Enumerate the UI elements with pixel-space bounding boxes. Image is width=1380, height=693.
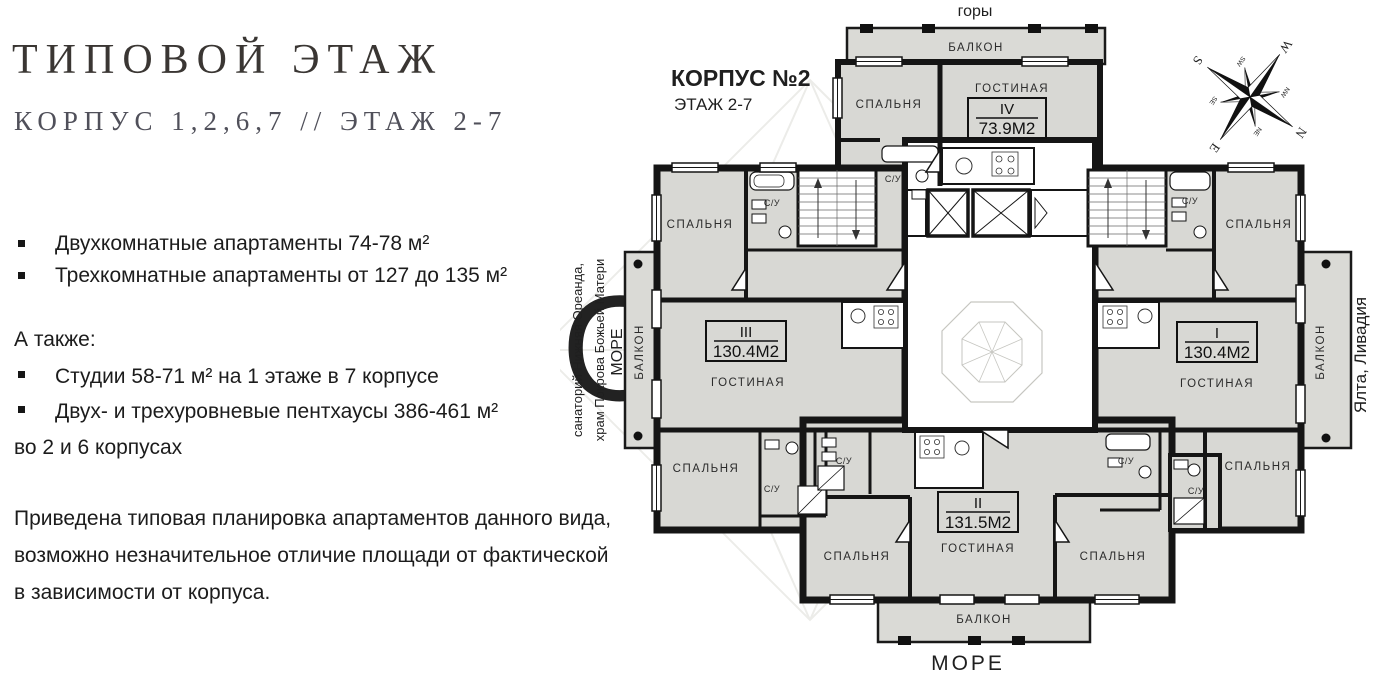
apartment-number: III (740, 324, 753, 341)
surrounding-sea-left: МОРЕ (609, 328, 626, 375)
bathroom-label: С/У (1118, 456, 1134, 466)
bedroom-label: СПАЛЬНЯ (856, 99, 923, 111)
apartment-number: II (974, 495, 982, 512)
surrounding-yalta: Ялта, Ливадия (1351, 297, 1370, 413)
apartment-iii-box: III 130.4М2 ГОСТИНАЯ (706, 321, 786, 389)
bedroom-label: СПАЛЬНЯ (824, 551, 891, 563)
also-bullets: А также: Студии 58-71 м² на 1 этаже в 7 … (14, 322, 614, 465)
compass-e: E (1206, 141, 1223, 156)
apartment-area: 131.5М2 (945, 513, 1011, 532)
bullet-text: Студии 58-71 м² на 1 этаже в 7 корпусе (55, 359, 439, 394)
info-panel: ТИПОВОЙ ЭТАЖ КОРПУС 1,2,6,7 // ЭТАЖ 2-7 … (0, 0, 630, 693)
compass-nw: NW (1278, 86, 1290, 100)
living-room-label: ГОСТИНАЯ (975, 83, 1049, 95)
surrounding-mountains: горы (958, 3, 993, 20)
slide: ТИПОВОЙ ЭТАЖ КОРПУС 1,2,6,7 // ЭТАЖ 2-7 … (0, 0, 1380, 693)
list-item: Двухкомнатные апартаменты 74-78 м² (14, 228, 614, 260)
living-room-label: ГОСТИНАЯ (1180, 378, 1254, 390)
kitchen-unit (942, 148, 1034, 184)
compass-sw: SW (1234, 55, 1246, 68)
compass-ne: NE (1251, 126, 1262, 138)
bathroom-label: С/У (1182, 196, 1198, 206)
balcony-label: БАЛКОН (1315, 324, 1327, 380)
surrounding-sea-bottom: МОРЕ (931, 652, 1005, 675)
page-subtitle: КОРПУС 1,2,6,7 // ЭТАЖ 2-7 (14, 106, 507, 137)
bathroom-label: С/У (836, 456, 852, 466)
list-item: Студии 58-71 м² на 1 этаже в 7 корпусе (14, 359, 614, 394)
apartment-area: 73.9М2 (979, 119, 1036, 138)
bullet-marker (18, 406, 25, 413)
disclaimer-note: Приведена типовая планировка апартаменто… (14, 500, 614, 611)
compass-se: SE (1207, 95, 1218, 107)
bathroom-label: С/У (885, 174, 901, 184)
list-item: Двух- и трехуровневые пентхаусы 386-461 … (14, 394, 614, 429)
bathroom-label: С/У (764, 484, 780, 494)
list-item: Трехкомнатные апартаменты от 127 до 135 … (14, 260, 614, 292)
etazh-label: ЭТАЖ 2-7 (674, 95, 752, 114)
bathroom-label: С/У (1188, 486, 1204, 496)
apartment-number: IV (1000, 101, 1014, 118)
surrounding-left-line1: санаторий Нижняя Ореанда, (570, 263, 585, 437)
stairs-left (798, 170, 876, 246)
kitchen-unit (842, 302, 904, 348)
bullet-text: Двух- и трехуровневые пентхаусы 386-461 … (55, 394, 498, 429)
compass-w: W (1276, 37, 1296, 56)
balcony-label: БАЛКОН (634, 324, 646, 380)
kitchen-unit (1097, 302, 1159, 348)
bullet-text: Двухкомнатные апартаменты 74-78 м² (55, 228, 429, 260)
compass-s: S (1190, 53, 1206, 68)
korpus-label: КОРПУС №2 (671, 65, 811, 91)
balcony-bottom: БАЛКОН (878, 598, 1090, 645)
living-room-label: ГОСТИНАЯ (711, 377, 785, 389)
compass-n: N (1292, 125, 1310, 142)
apartment-ii-box: II 131.5М2 ГОСТИНАЯ (938, 492, 1018, 555)
apartment-bullets: Двухкомнатные апартаменты 74-78 м² Трехк… (14, 228, 614, 292)
bedroom-label: СПАЛЬНЯ (1226, 219, 1293, 231)
also-tail: во 2 и 6 корпусах (14, 430, 614, 465)
elevator (907, 190, 1091, 236)
also-label: А также: (14, 322, 614, 357)
page-title: ТИПОВОЙ ЭТАЖ (12, 36, 443, 84)
bullet-text: Трехкомнатные апартаменты от 127 до 135 … (55, 260, 507, 292)
bedroom-label: СПАЛЬНЯ (667, 219, 734, 231)
apartment-area: 130.4М2 (1184, 343, 1250, 362)
apartment-area: 130.4М2 (713, 342, 779, 361)
bathroom-label: С/У (764, 198, 780, 208)
apartment-number: I (1215, 325, 1219, 342)
balcony-label: БАЛКОН (948, 42, 1004, 54)
bedroom-label: СПАЛЬНЯ (1080, 551, 1147, 563)
bedroom-label: СПАЛЬНЯ (1225, 461, 1292, 473)
apartment-i-box: I 130.4М2 ГОСТИНАЯ (1177, 322, 1257, 390)
stairs-right (1088, 170, 1166, 246)
apartment-iv-box: IV 73.9М2 ГОСТИНАЯ (968, 83, 1049, 138)
bullet-marker (18, 371, 25, 378)
balcony-label: БАЛКОН (956, 614, 1012, 626)
surrounding-left-line2: храм Покрова Божьей Матери (592, 259, 607, 441)
bullet-marker (18, 240, 25, 247)
kitchen-unit (915, 432, 983, 488)
bedroom-label: СПАЛЬНЯ (673, 463, 740, 475)
living-room-label: ГОСТИНАЯ (941, 543, 1015, 555)
floor-plan: ONYX realestate БАЛКОН БАЛКОН БАЛКОН (560, 0, 1380, 693)
bullet-marker (18, 272, 25, 279)
balcony-right: БАЛКОН (1301, 252, 1351, 448)
